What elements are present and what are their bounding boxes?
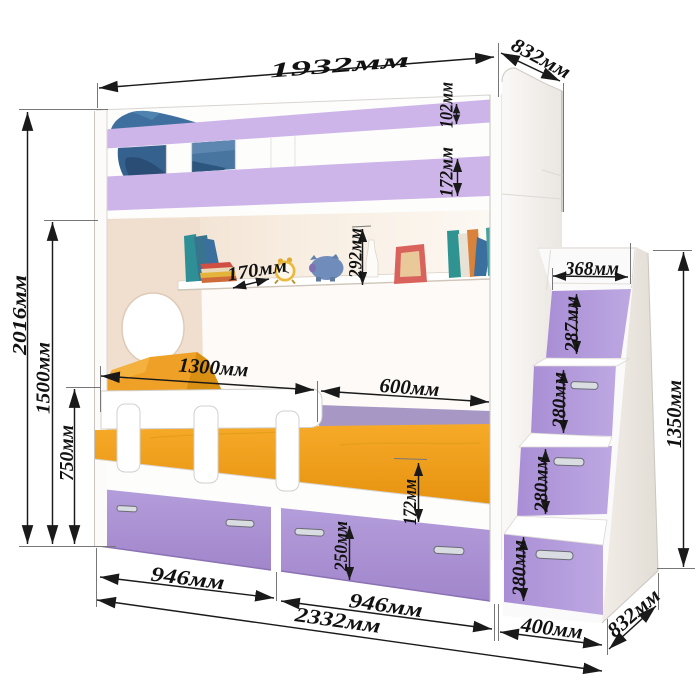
svg-text:750мм: 750мм	[56, 425, 78, 481]
svg-text:280мм: 280мм	[549, 372, 571, 429]
svg-text:292мм: 292мм	[346, 228, 367, 279]
svg-text:172мм: 172мм	[437, 147, 458, 197]
svg-text:250мм: 250мм	[331, 521, 352, 572]
svg-text:172мм: 172мм	[400, 479, 421, 525]
svg-text:600мм: 600мм	[379, 375, 440, 401]
svg-text:1500мм: 1500мм	[33, 342, 55, 414]
svg-text:280мм: 280мм	[509, 540, 531, 597]
svg-text:2016мм: 2016мм	[9, 275, 31, 356]
svg-text:1350мм: 1350мм	[662, 380, 686, 448]
svg-text:280мм: 280мм	[531, 456, 553, 513]
svg-text:287мм: 287мм	[561, 296, 583, 353]
svg-text:102мм: 102мм	[437, 82, 458, 128]
svg-text:368мм: 368мм	[564, 258, 619, 280]
